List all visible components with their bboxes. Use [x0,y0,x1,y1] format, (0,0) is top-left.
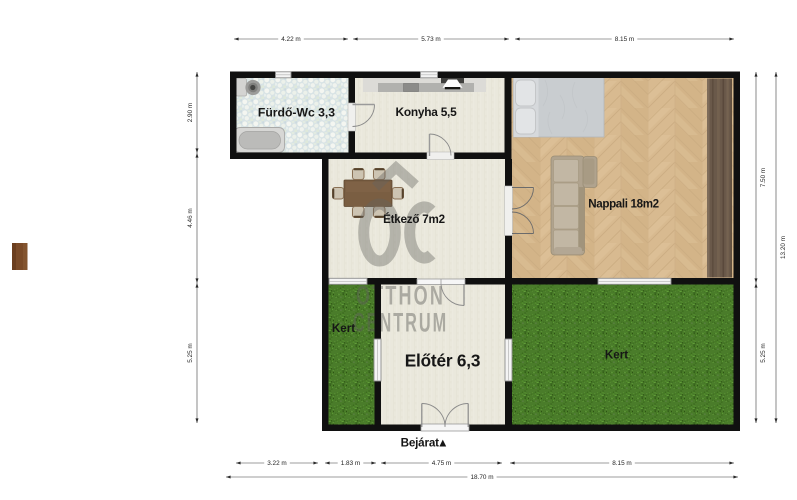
svg-text:Fürdő-Wc 3,3: Fürdő-Wc 3,3 [258,106,335,120]
svg-text:Kert: Kert [332,322,355,335]
svg-text:Előtér 6,3: Előtér 6,3 [405,351,480,371]
svg-text:Konyha 5,5: Konyha 5,5 [396,105,458,119]
svg-text:CENTRUM: CENTRUM [353,307,448,337]
svg-text:18.70 m: 18.70 m [470,474,493,481]
svg-text:4.75 m: 4.75 m [432,460,452,467]
svg-text:4.22 m: 4.22 m [281,36,301,43]
svg-text:8.15 m: 8.15 m [615,36,635,43]
svg-text:5.73 m: 5.73 m [421,36,441,43]
svg-text:3.22 m: 3.22 m [267,460,287,467]
svg-text:4.46 m: 4.46 m [187,208,194,228]
svg-text:5.25 m: 5.25 m [760,343,767,363]
svg-text:7.50 m: 7.50 m [760,168,767,188]
svg-text:8.15 m: 8.15 m [612,460,632,467]
svg-text:Kert: Kert [605,349,628,362]
svg-text:5.25 m: 5.25 m [187,343,194,363]
svg-text:1.83 m: 1.83 m [341,460,361,467]
svg-text:13.20 m: 13.20 m [780,236,787,259]
svg-text:Étkező 7m2: Étkező 7m2 [383,213,445,226]
svg-text:Bejárat▲: Bejárat▲ [401,437,449,450]
svg-text:Nappali 18m2: Nappali 18m2 [588,198,659,211]
svg-text:2.90 m: 2.90 m [187,103,194,123]
